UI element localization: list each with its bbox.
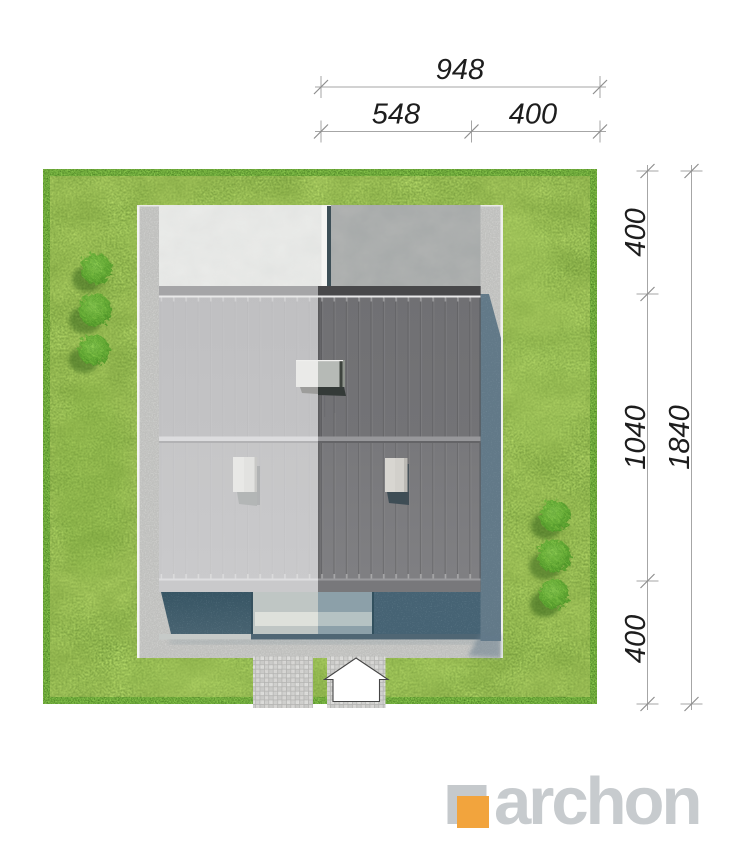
svg-text:400: 400	[620, 208, 652, 256]
svg-text:400: 400	[509, 99, 557, 131]
svg-text:400: 400	[620, 615, 652, 663]
svg-text:548: 548	[372, 99, 420, 131]
svg-text:948: 948	[436, 54, 484, 86]
svg-text:1040: 1040	[620, 405, 652, 470]
svg-text:1840: 1840	[664, 405, 696, 470]
svg-text:archon: archon	[494, 764, 699, 839]
